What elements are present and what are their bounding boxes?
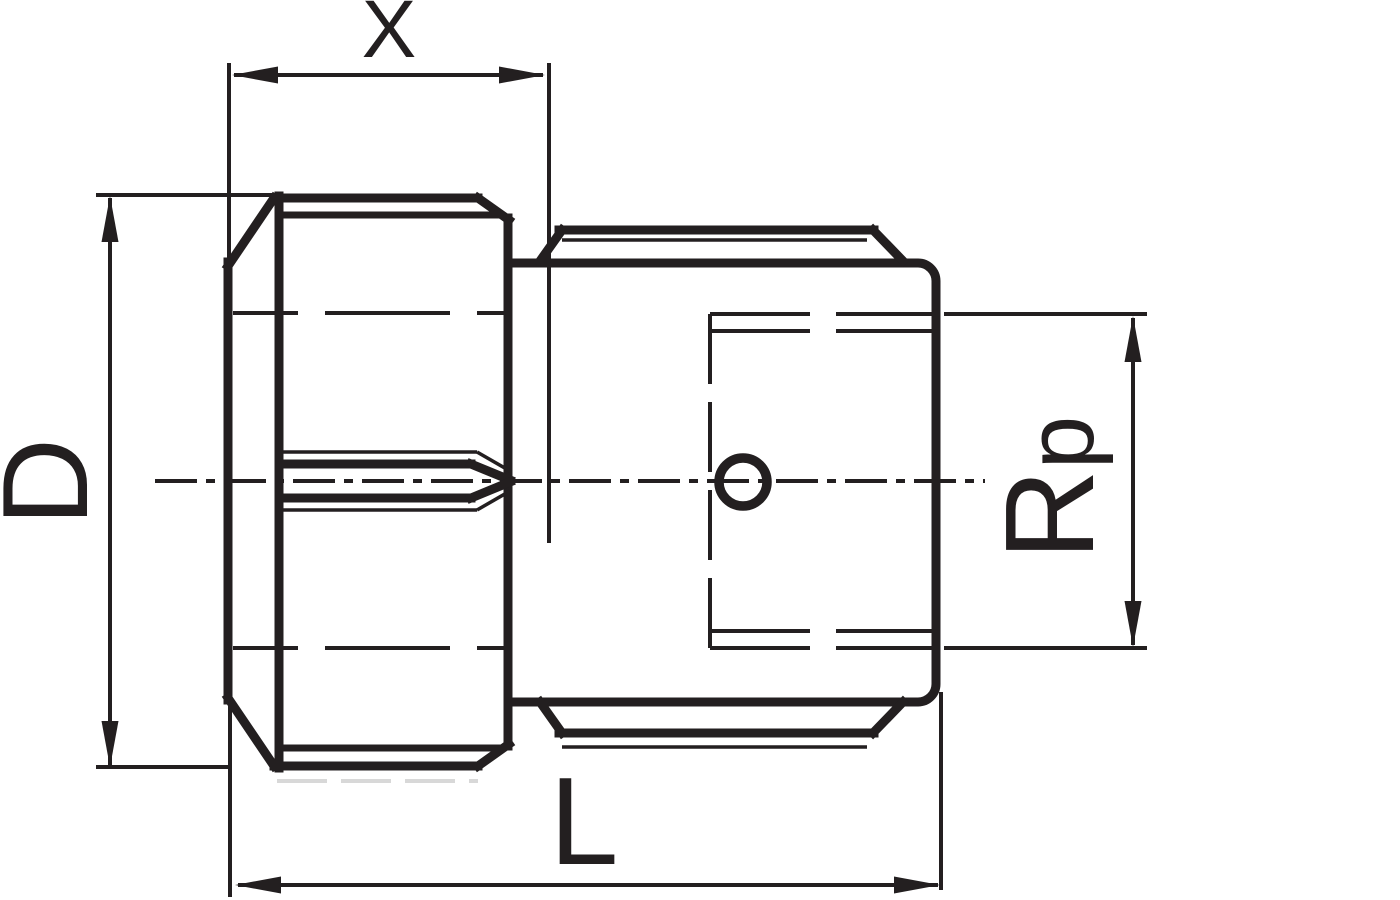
dimension-label-d: D [0,438,106,526]
hex-bottom-left-bevel [228,698,274,766]
l-arrow-right [894,877,940,894]
d-arrow-bottom [102,721,119,767]
dimension-label-rp: Rp [987,416,1113,560]
body-collar-bottom-left-bevel [540,702,562,733]
rp-label-sub: p [1007,416,1114,469]
d-arrow-top [102,196,119,242]
l-arrow-left [235,877,281,894]
body-collar-top-right-bevel [873,230,903,261]
rp-label-main: R [979,469,1120,560]
x-arrow-right [499,67,545,84]
dimension-label-l: L [550,760,619,884]
x-arrow-left [232,67,278,84]
rp-arrow-top [1125,316,1142,362]
body-collar-bottom-right-bevel [873,702,903,733]
rp-arrow-bottom [1125,601,1142,647]
hex-top-left-bevel [228,198,274,266]
fitting-drawing [0,0,1400,900]
dimension-label-x: X [362,0,417,71]
technical-drawing-canvas: X D L Rp [0,0,1400,900]
